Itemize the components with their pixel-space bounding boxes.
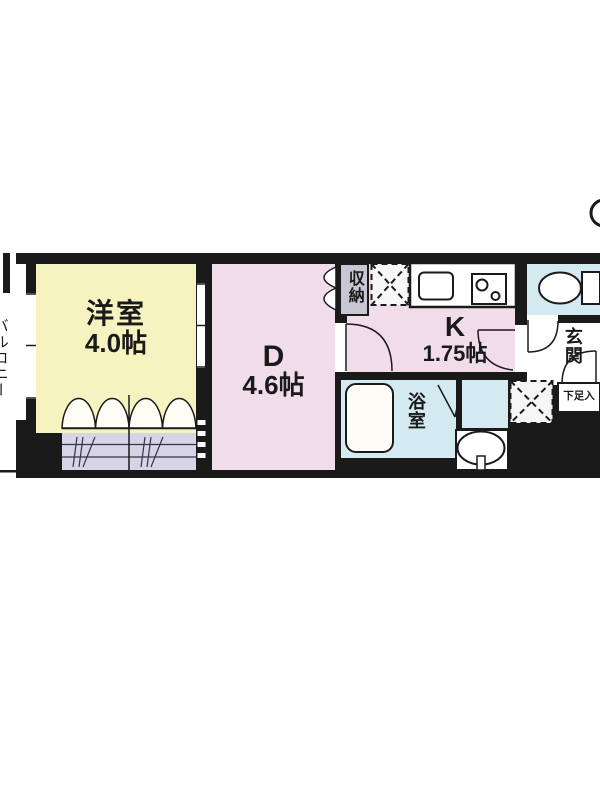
storage-label: 収納 [345, 270, 362, 304]
door-toilet [528, 320, 558, 352]
kitchen-size: 1.75帖 [400, 342, 510, 365]
washbasin [456, 430, 508, 470]
storage-bifold-door [324, 267, 336, 310]
western-room-size: 4.0帖 [36, 330, 196, 357]
kitchen-sink [419, 273, 453, 300]
refrigerator-space [372, 264, 409, 305]
floorplan-canvas: バルコニー 洋室 4.0帖 D 4.6帖 K 1.75帖 収納 玄関 下足入 浴… [0, 0, 600, 800]
compass-icon [591, 200, 600, 226]
bathroom-label: 浴室 [406, 392, 425, 430]
kitchen-label: K [400, 312, 510, 341]
dining-label: D [212, 341, 335, 373]
toilet-fixture [539, 272, 600, 304]
balcony-bottom-line [0, 470, 16, 473]
washing-machine-space [511, 381, 553, 423]
wall-dashes [198, 420, 206, 458]
wall-stub [3, 253, 10, 293]
fixtures-overlay [0, 0, 600, 800]
partition-ticks [197, 284, 205, 367]
door-dining-kitchen [346, 324, 392, 371]
western-room-label: 洋室 [36, 299, 196, 328]
stove [472, 274, 506, 304]
balcony-label: バルコニー [0, 318, 8, 398]
dining-size: 4.6帖 [212, 372, 335, 399]
shoe-box-label: 下足入 [558, 391, 600, 402]
bathtub [346, 384, 393, 452]
door-bathroom [438, 385, 458, 417]
entrance-label: 玄関 [563, 327, 582, 365]
window-ticks [26, 294, 36, 398]
